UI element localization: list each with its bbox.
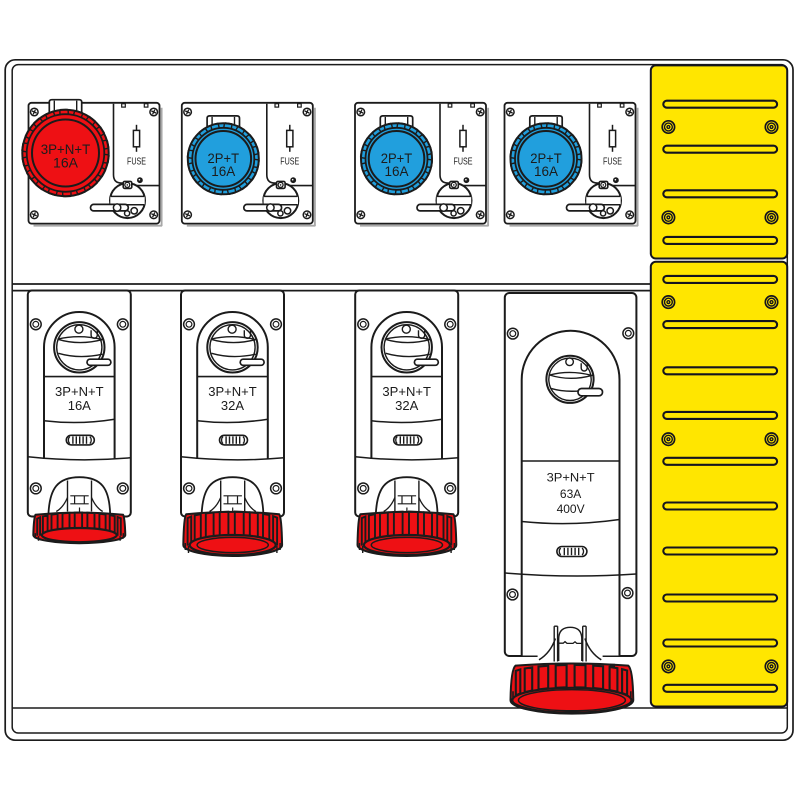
svg-text:16A: 16A (68, 398, 91, 413)
svg-text:63A: 63A (560, 487, 581, 501)
svg-text:16A: 16A (53, 155, 79, 171)
svg-text:400V: 400V (557, 502, 585, 516)
svg-text:FUSE: FUSE (454, 157, 473, 168)
svg-text:32A: 32A (395, 398, 418, 413)
svg-text:3P+N+T: 3P+N+T (208, 384, 257, 399)
svg-text:3P+N+T: 3P+N+T (382, 384, 431, 399)
svg-text:3P+N+T: 3P+N+T (547, 471, 596, 485)
svg-text:32A: 32A (221, 398, 244, 413)
svg-text:FUSE: FUSE (603, 157, 622, 168)
svg-text:3P+N+T: 3P+N+T (55, 384, 104, 399)
svg-text:FUSE: FUSE (280, 157, 299, 168)
svg-text:16A: 16A (384, 164, 408, 179)
svg-text:FUSE: FUSE (127, 157, 146, 168)
svg-text:16A: 16A (211, 164, 235, 179)
svg-text:16A: 16A (534, 164, 558, 179)
